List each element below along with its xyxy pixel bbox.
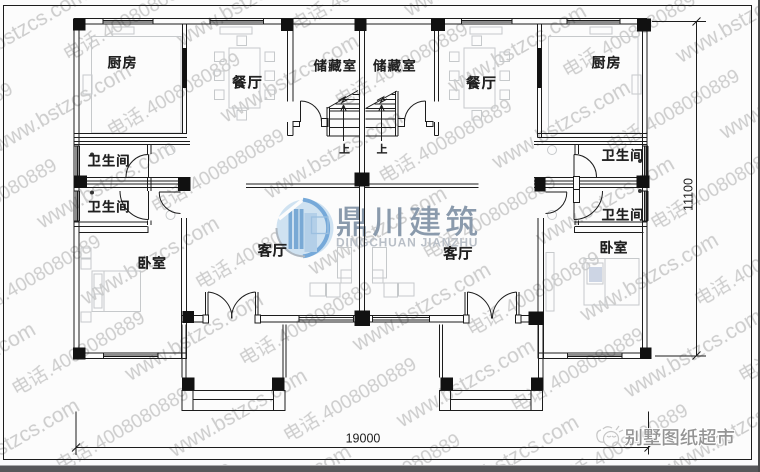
- svg-text:19000: 19000: [346, 432, 381, 446]
- svg-text:11100: 11100: [682, 178, 696, 211]
- svg-text:DINGCHUAN JIANZHU: DINGCHUAN JIANZHU: [336, 236, 478, 250]
